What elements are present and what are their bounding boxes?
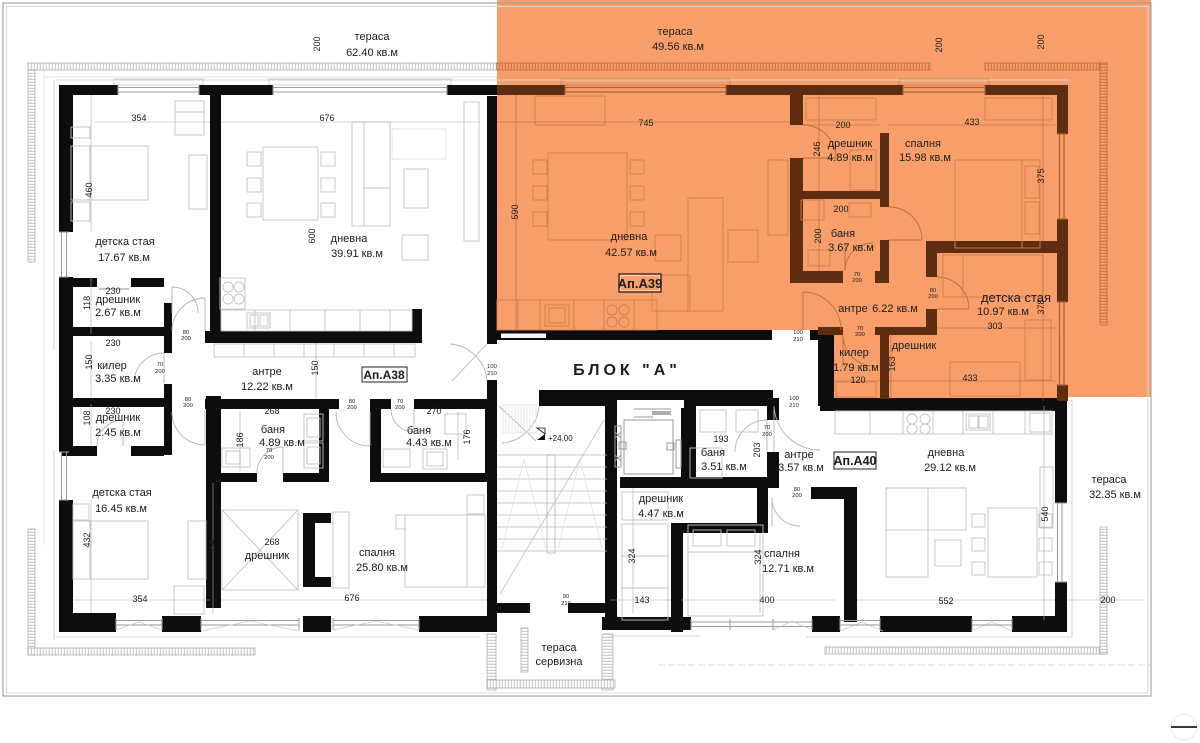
svg-text:2.67 кв.м: 2.67 кв.м xyxy=(95,307,141,319)
svg-text:70: 70 xyxy=(764,425,770,431)
svg-text:баня: баня xyxy=(261,424,285,436)
svg-text:антре: антре xyxy=(838,303,867,315)
svg-text:200: 200 xyxy=(312,36,322,51)
svg-text:баня: баня xyxy=(701,447,725,459)
svg-text:200: 200 xyxy=(835,120,850,130)
svg-text:антре: антре xyxy=(784,449,813,461)
svg-text:324: 324 xyxy=(627,548,637,563)
svg-text:230: 230 xyxy=(105,338,120,348)
svg-text:200: 200 xyxy=(155,369,165,375)
svg-text:270: 270 xyxy=(426,406,441,416)
svg-text:200: 200 xyxy=(1036,34,1046,49)
svg-text:210: 210 xyxy=(561,601,571,607)
svg-text:210: 210 xyxy=(793,337,803,343)
svg-text:тераса: тераса xyxy=(542,642,578,654)
svg-text:килер: килер xyxy=(839,347,869,359)
svg-text:200: 200 xyxy=(1100,595,1115,605)
svg-text:Ап.А40: Ап.А40 xyxy=(834,454,877,468)
svg-text:3.35 кв.м: 3.35 кв.м xyxy=(95,373,141,385)
svg-text:32.35 кв.м: 32.35 кв.м xyxy=(1089,489,1141,501)
svg-text:спалня: спалня xyxy=(764,548,800,560)
svg-text:3.51 кв.м: 3.51 кв.м xyxy=(701,461,747,473)
svg-text:552: 552 xyxy=(938,596,953,606)
svg-text:49.56 кв.м: 49.56 кв.м xyxy=(652,41,704,53)
svg-text:150: 150 xyxy=(310,360,320,375)
svg-text:210: 210 xyxy=(487,371,497,377)
svg-text:баня: баня xyxy=(831,228,855,240)
svg-text:17.67 кв.м: 17.67 кв.м xyxy=(98,252,150,264)
svg-text:432: 432 xyxy=(82,532,92,547)
svg-text:62.40 кв.м: 62.40 кв.м xyxy=(346,47,398,59)
svg-text:1.79 кв.м: 1.79 кв.м xyxy=(833,362,879,374)
svg-text:2.45 кв.м: 2.45 кв.м xyxy=(95,427,141,439)
svg-text:39.91 кв.м: 39.91 кв.м xyxy=(331,248,383,260)
svg-text:200: 200 xyxy=(395,405,405,411)
svg-text:186: 186 xyxy=(235,432,245,447)
svg-text:676: 676 xyxy=(344,593,359,603)
svg-text:100: 100 xyxy=(487,364,497,370)
svg-text:210: 210 xyxy=(789,403,799,409)
svg-text:6.22 кв.м: 6.22 кв.м xyxy=(872,303,918,315)
svg-text:378: 378 xyxy=(1036,299,1046,314)
svg-text:дневна: дневна xyxy=(928,447,966,459)
svg-text:108: 108 xyxy=(82,410,92,425)
svg-text:29.12 кв.м: 29.12 кв.м xyxy=(924,462,976,474)
svg-text:433: 433 xyxy=(962,373,977,383)
svg-text:дневна: дневна xyxy=(331,233,369,245)
svg-text:дрешник: дрешник xyxy=(639,493,684,505)
svg-text:268: 268 xyxy=(264,406,279,416)
svg-text:200: 200 xyxy=(792,493,802,499)
svg-text:дрешник: дрешник xyxy=(245,550,290,562)
svg-text:килер: килер xyxy=(97,360,127,372)
svg-text:200: 200 xyxy=(833,204,848,214)
svg-text:Ап.А38: Ап.А38 xyxy=(363,368,405,382)
svg-text:200: 200 xyxy=(264,455,274,461)
svg-text:100: 100 xyxy=(793,330,803,336)
svg-text:3.67 кв.м: 3.67 кв.м xyxy=(828,242,874,254)
svg-text:200: 200 xyxy=(852,278,862,284)
svg-text:10.97 кв.м: 10.97 кв.м xyxy=(977,306,1029,318)
svg-text:90: 90 xyxy=(563,594,569,600)
svg-text:12.22 кв.м: 12.22 кв.м xyxy=(241,381,293,393)
svg-text:203: 203 xyxy=(752,442,762,457)
svg-text:540: 540 xyxy=(1040,506,1050,521)
svg-text:246: 246 xyxy=(812,141,822,156)
svg-text:тераса: тераса xyxy=(355,31,391,43)
svg-text:150: 150 xyxy=(84,354,94,369)
svg-text:дрешник: дрешник xyxy=(892,340,937,352)
svg-text:4.47 кв.м: 4.47 кв.м xyxy=(638,508,684,520)
svg-text:100: 100 xyxy=(789,396,799,402)
svg-text:354: 354 xyxy=(132,594,147,604)
svg-text:сервизна: сервизна xyxy=(536,656,584,668)
svg-text:дрешник: дрешник xyxy=(828,138,873,150)
svg-text:25.80 кв.м: 25.80 кв.м xyxy=(356,562,408,574)
svg-text:176: 176 xyxy=(462,429,472,444)
svg-text:4.43 кв.м: 4.43 кв.м xyxy=(406,437,452,449)
svg-text:193: 193 xyxy=(713,434,728,444)
svg-text:143: 143 xyxy=(634,595,649,605)
svg-text:16.45 кв.м: 16.45 кв.м xyxy=(95,503,147,515)
svg-text:200: 200 xyxy=(855,332,865,338)
svg-text:200: 200 xyxy=(347,405,357,411)
svg-text:200: 200 xyxy=(928,294,938,300)
svg-text:600: 600 xyxy=(307,228,317,243)
svg-text:детска стая: детска стая xyxy=(95,236,154,248)
svg-text:400: 400 xyxy=(759,595,774,605)
svg-text:4.89 кв.м: 4.89 кв.м xyxy=(827,152,873,164)
svg-text:460: 460 xyxy=(84,182,94,197)
svg-text:спалня: спалня xyxy=(905,138,941,150)
svg-text:детска стая: детска стая xyxy=(92,487,151,499)
svg-text:200: 200 xyxy=(183,403,193,409)
svg-text:590: 590 xyxy=(510,204,520,219)
svg-text:тераса: тераса xyxy=(1092,474,1128,486)
svg-text:118: 118 xyxy=(82,296,92,310)
svg-text:120: 120 xyxy=(850,375,865,385)
svg-text:12.71 кв.м: 12.71 кв.м xyxy=(762,563,814,575)
svg-text:дневна: дневна xyxy=(611,231,649,243)
svg-text:БЛОК "А": БЛОК "А" xyxy=(573,362,681,379)
svg-text:70: 70 xyxy=(157,362,163,368)
svg-text:15.98 кв.м: 15.98 кв.м xyxy=(899,152,951,164)
svg-text:163: 163 xyxy=(887,356,897,371)
svg-text:268: 268 xyxy=(264,537,279,547)
svg-text:42.57 кв.м: 42.57 кв.м xyxy=(605,247,657,259)
svg-text:спалня: спалня xyxy=(359,547,395,559)
svg-text:70: 70 xyxy=(266,448,272,454)
svg-text:230: 230 xyxy=(105,406,120,416)
svg-text:354: 354 xyxy=(131,113,146,123)
svg-text:375: 375 xyxy=(1036,168,1046,183)
svg-text:354: 354 xyxy=(207,539,217,554)
svg-text:3.57 кв.м: 3.57 кв.м xyxy=(778,462,824,474)
svg-text:антре: антре xyxy=(252,366,281,378)
svg-text:324: 324 xyxy=(753,549,763,564)
svg-text:303: 303 xyxy=(987,321,1002,331)
svg-text:+24.00: +24.00 xyxy=(548,434,573,443)
svg-text:200: 200 xyxy=(181,336,191,342)
svg-text:230: 230 xyxy=(105,286,120,296)
svg-text:200: 200 xyxy=(762,432,772,438)
svg-text:баня: баня xyxy=(407,425,431,437)
svg-text:433: 433 xyxy=(964,117,979,127)
svg-text:тераса: тераса xyxy=(658,26,694,38)
svg-text:200: 200 xyxy=(934,37,944,52)
svg-text:Ап.А39: Ап.А39 xyxy=(618,276,663,291)
svg-text:676: 676 xyxy=(319,113,334,123)
svg-text:200: 200 xyxy=(813,228,823,243)
svg-text:745: 745 xyxy=(638,118,653,128)
